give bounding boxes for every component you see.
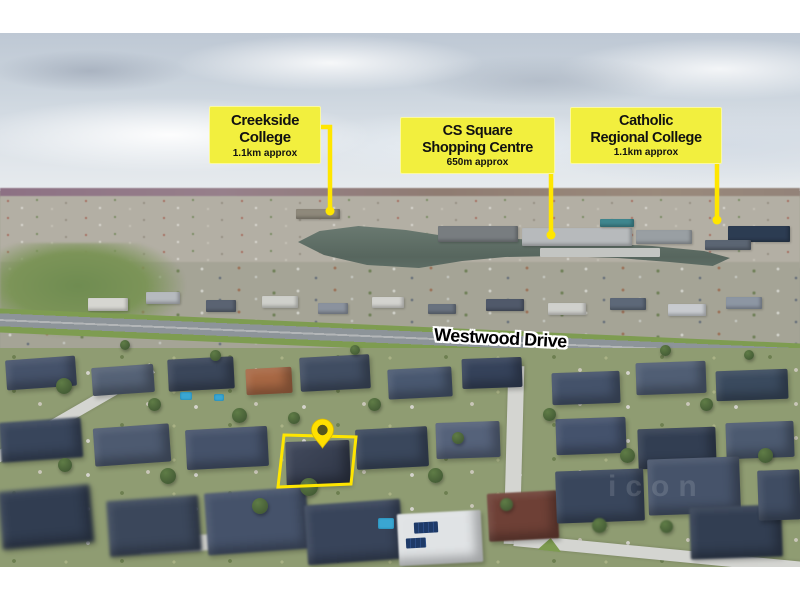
teal-building (600, 219, 634, 227)
swimming-pool (378, 518, 394, 529)
swimming-pool (180, 392, 192, 400)
house-roof (555, 417, 626, 455)
callout-title-line: Shopping Centre (405, 140, 550, 157)
house-roof (548, 303, 586, 315)
tree (660, 345, 671, 356)
tree (120, 340, 130, 350)
tree (428, 468, 443, 483)
house-roof (487, 490, 559, 542)
house-roof (91, 364, 155, 396)
tree (744, 350, 754, 360)
tree (500, 498, 513, 511)
callout-title-line: Regional College (575, 130, 717, 147)
tree (660, 520, 673, 533)
house-roof (757, 469, 800, 520)
house-roof (204, 487, 310, 556)
tree (288, 412, 300, 424)
tree (56, 378, 72, 394)
house-roof (262, 296, 298, 308)
tree (58, 458, 72, 472)
creekside-college-building (296, 209, 340, 219)
house-roof (245, 367, 292, 395)
tree (300, 478, 318, 496)
house-roof (726, 297, 762, 309)
highlighted-property-roof (285, 440, 350, 486)
house-roof (206, 300, 236, 312)
callout-catholic-regional-college: Catholic Regional College 1.1km approx (570, 107, 722, 164)
house-roof (635, 361, 706, 395)
tree (620, 448, 635, 463)
house-roof (0, 417, 83, 463)
house-roof (435, 421, 500, 459)
shopping-centre-building (636, 230, 692, 244)
callout-distance: 1.1km approx (214, 148, 316, 160)
shopping-centre-building (438, 226, 518, 242)
shopping-centre-building (522, 228, 632, 246)
house-roof (372, 297, 404, 308)
house-roof (304, 499, 404, 566)
house-roof (167, 356, 235, 391)
tree (758, 448, 773, 463)
tree (592, 518, 607, 533)
tree (350, 345, 360, 355)
callout-title-line: Catholic (575, 113, 717, 130)
college-building (705, 240, 751, 250)
callout-distance: 1.1km approx (575, 147, 717, 159)
carpark (540, 248, 660, 257)
house-roof (88, 298, 128, 311)
house-roof (106, 495, 202, 557)
tree (700, 398, 713, 411)
house-roof (610, 298, 646, 310)
tree (160, 468, 176, 484)
tree (148, 398, 161, 411)
house-roof (486, 299, 524, 311)
tree (452, 432, 464, 444)
watermark: icon (608, 470, 706, 504)
house-roof (461, 357, 522, 389)
house-roof (428, 304, 456, 314)
house-roof (93, 423, 171, 466)
solar-panels (406, 537, 426, 548)
tree (368, 398, 381, 411)
callout-cs-square-shopping-centre: CS Square Shopping Centre 650m approx (400, 117, 555, 174)
tree (210, 350, 221, 361)
house-roof (715, 369, 788, 401)
callout-title-line: Creekside (214, 112, 316, 129)
annotated-aerial-photo: icon Creekside College 1.1km approx CS S… (0, 0, 800, 600)
tree (232, 408, 247, 423)
tree (543, 408, 556, 421)
house-roof (0, 484, 94, 550)
house-roof (318, 303, 348, 314)
callout-title-line: College (214, 129, 316, 146)
callout-distance: 650m approx (405, 157, 550, 169)
swimming-pool (214, 394, 224, 401)
house-roof (299, 354, 371, 392)
callout-title-line: CS Square (405, 123, 550, 140)
house-roof (355, 426, 429, 470)
house-roof (185, 426, 269, 470)
house-roof (146, 292, 180, 304)
callout-creekside-college: Creekside College 1.1km approx (209, 106, 321, 164)
house-roof (551, 371, 620, 405)
tree (252, 498, 268, 514)
house-roof (668, 304, 706, 316)
house-roof (387, 366, 452, 399)
solar-panels (414, 521, 439, 533)
